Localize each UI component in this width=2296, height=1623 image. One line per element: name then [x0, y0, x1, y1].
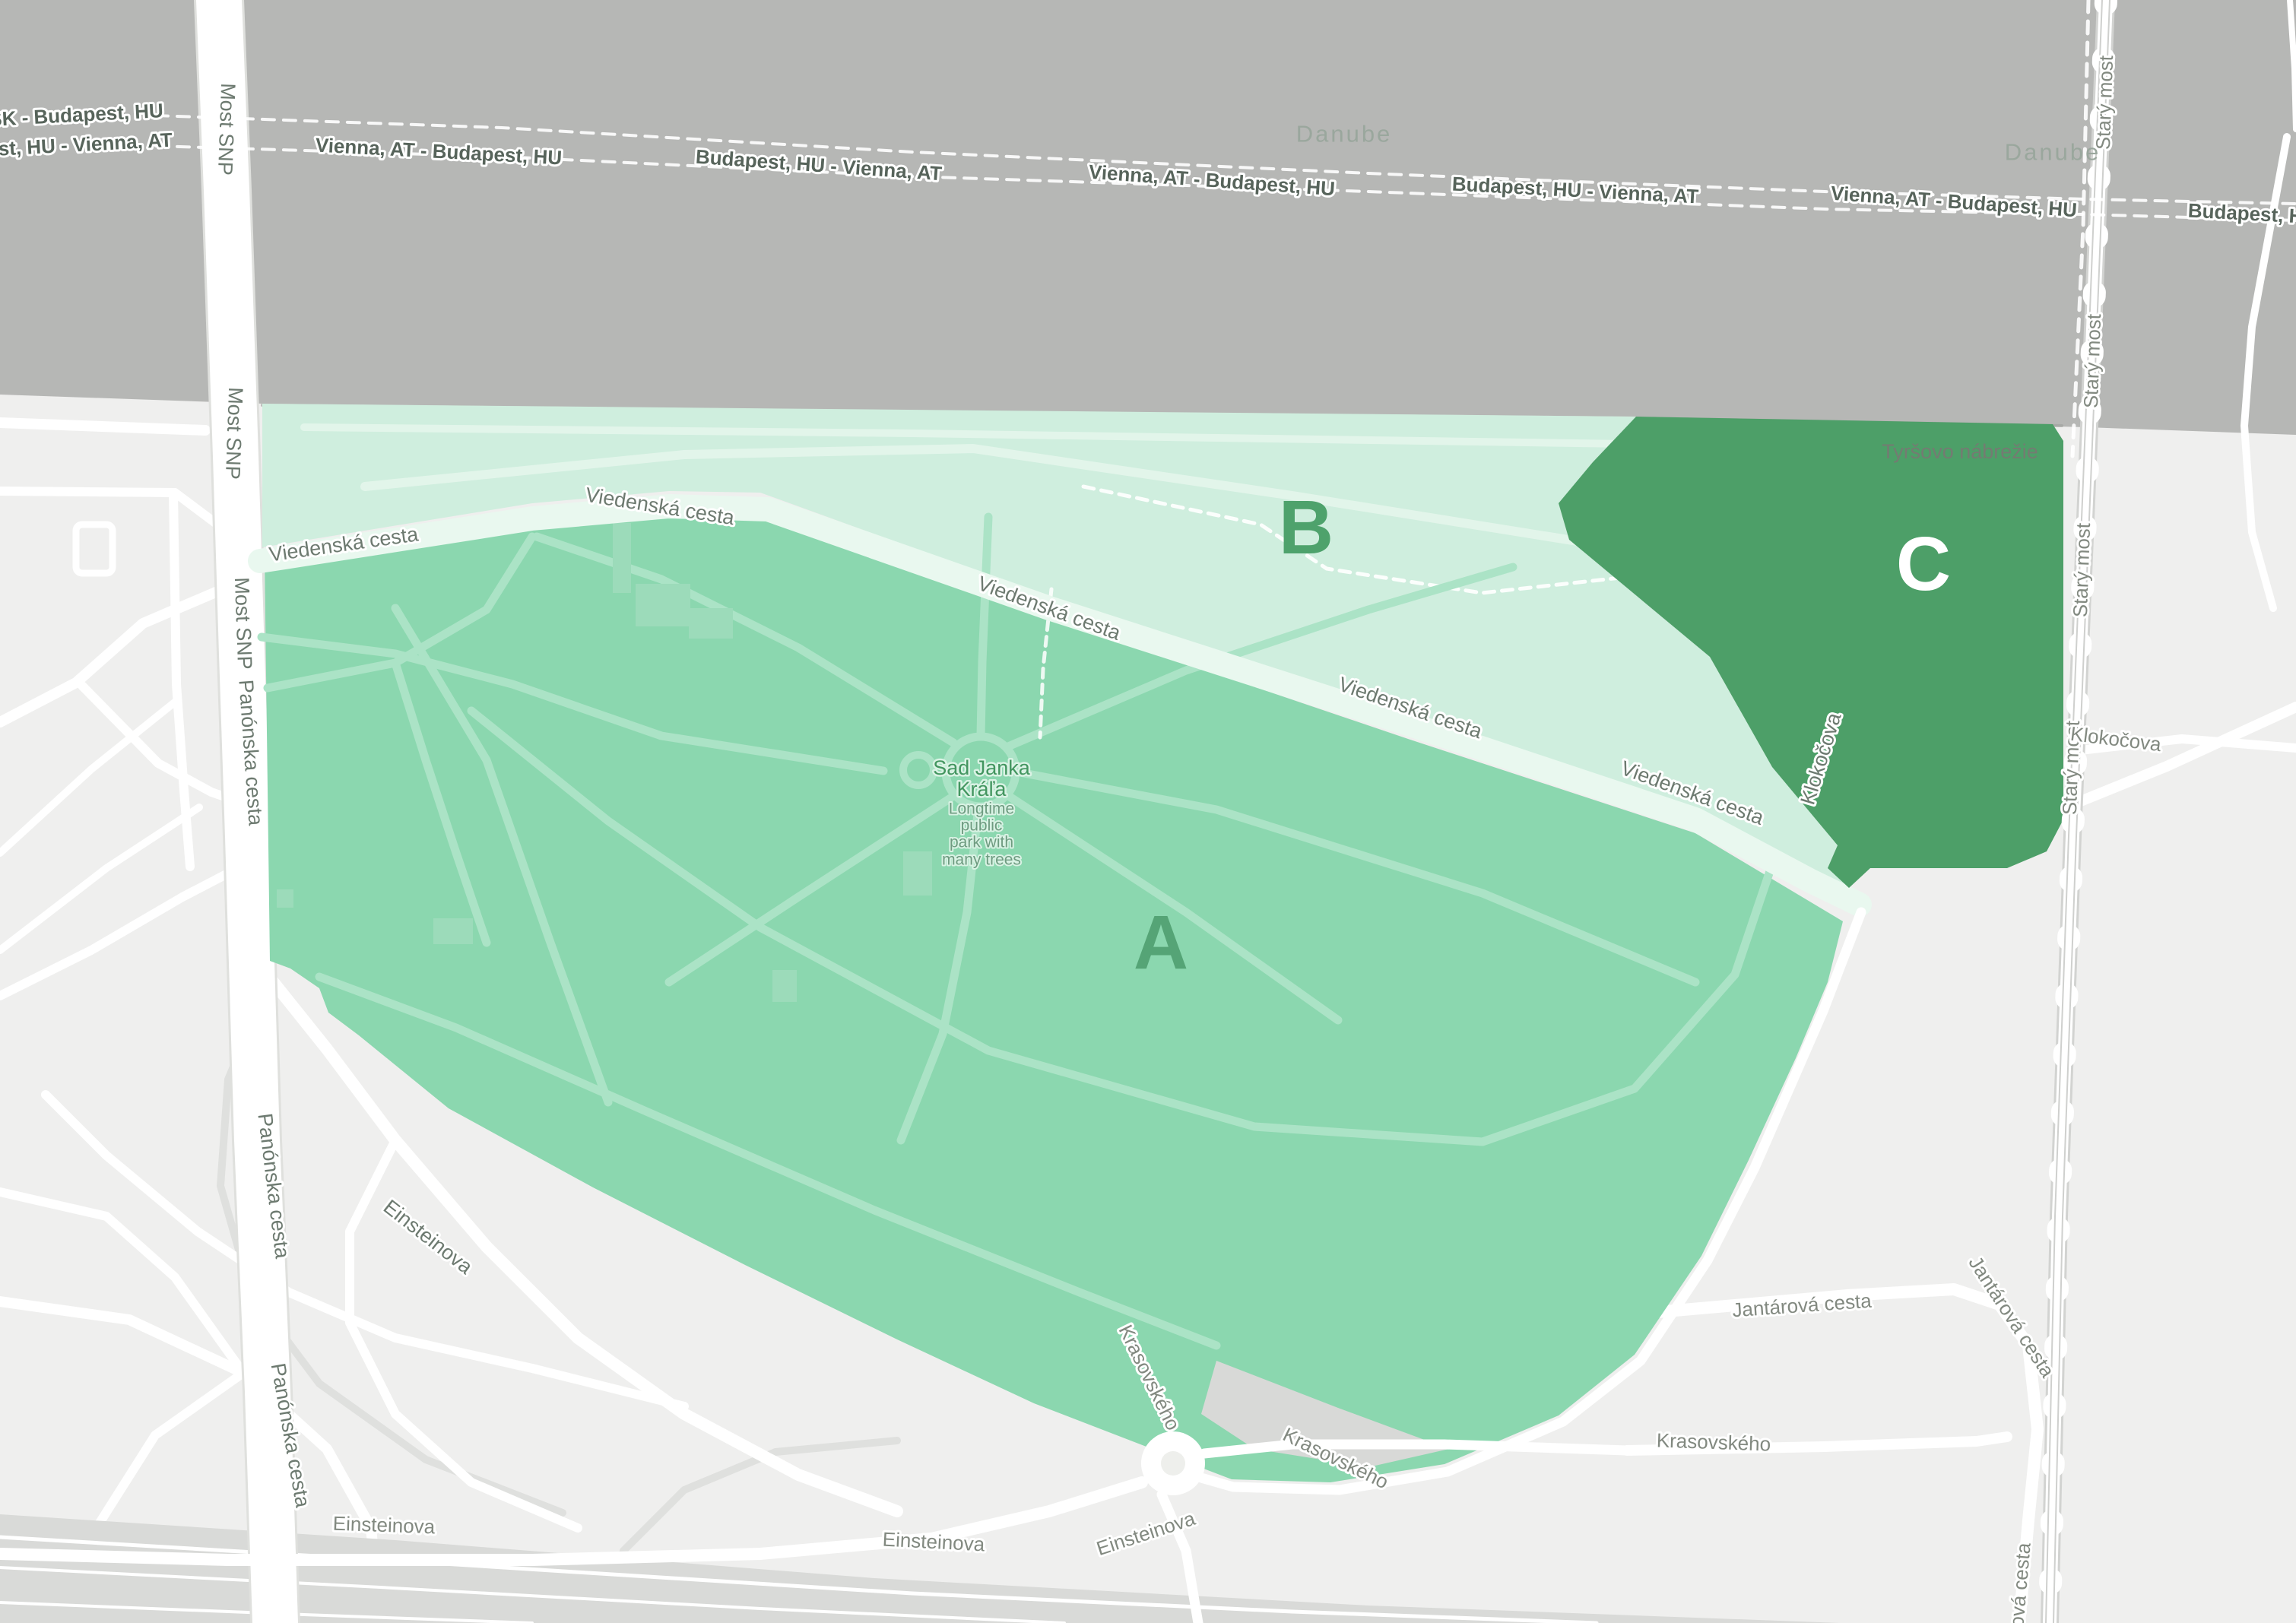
park-building [903, 851, 932, 896]
park-building [689, 608, 733, 639]
road-label-most-snp: Most SNP [221, 387, 247, 480]
area-label-tyrsovo: Tyršovo nábrežie [1882, 440, 2038, 463]
park-building [772, 970, 797, 1002]
road-label-most-snp: Most SNP [230, 577, 256, 670]
park-building [433, 918, 473, 944]
road-label-stary-most: Starý most [2069, 522, 2095, 618]
park-subtitle-line: many trees [942, 851, 1021, 869]
park-subtitle-line: public [961, 817, 1003, 835]
park-subtitle-line: Longtime [949, 800, 1014, 818]
road-label-most-snp: Most SNP [214, 83, 239, 176]
water-label-danube: Danube [2005, 139, 2101, 166]
park-building [613, 523, 631, 593]
zone-letter-b: B [1279, 485, 1334, 570]
park-building [277, 889, 293, 908]
water-label-danube: Danube [1296, 121, 1393, 147]
roundabout-island [1161, 1451, 1185, 1476]
zone-letter-c: C [1896, 521, 1951, 607]
park-building [636, 584, 690, 626]
road-label-einsteinova: Einsteinova [332, 1512, 436, 1539]
road-label-stary-most: Starý most [2079, 313, 2105, 409]
road-label-stary-most: Starý most [2091, 55, 2117, 151]
west-road [0, 423, 205, 430]
park-title-line: Sad Janka [933, 756, 1031, 779]
map-svg: SK - Budapest, HUest, HU - Vienna, ATVie… [0, 0, 2296, 1623]
zone-letter-a: A [1134, 900, 1188, 985]
map-canvas[interactable]: SK - Budapest, HUest, HU - Vienna, ATVie… [0, 0, 2296, 1623]
park-title-line: Kráľa [957, 778, 1007, 800]
road-label-krasovskeho: Krasovského [1656, 1428, 1771, 1455]
park-subtitle-line: park with [950, 834, 1013, 851]
danube-water [0, 0, 2296, 435]
